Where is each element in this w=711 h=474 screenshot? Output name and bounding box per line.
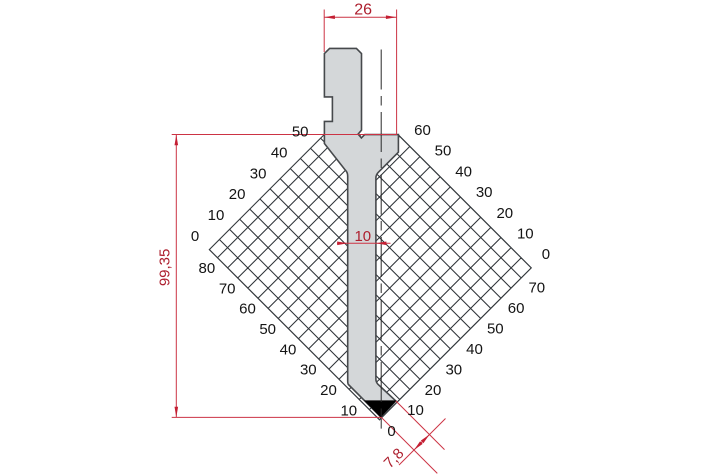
svg-text:10: 10 [407, 402, 424, 419]
svg-text:70: 70 [528, 280, 545, 297]
svg-text:80: 80 [199, 260, 216, 277]
svg-text:60: 60 [414, 122, 431, 139]
svg-text:20: 20 [425, 382, 442, 399]
svg-text:60: 60 [239, 301, 256, 318]
svg-text:0: 0 [542, 246, 550, 263]
svg-text:40: 40 [466, 341, 483, 358]
svg-text:30: 30 [300, 362, 317, 379]
svg-text:26: 26 [354, 2, 372, 19]
svg-text:50: 50 [292, 124, 309, 141]
svg-text:0: 0 [191, 228, 199, 245]
svg-text:20: 20 [320, 382, 337, 399]
svg-text:40: 40 [280, 341, 297, 358]
svg-text:60: 60 [508, 300, 525, 317]
svg-text:70: 70 [219, 280, 236, 297]
svg-text:20: 20 [496, 205, 513, 222]
svg-text:10: 10 [340, 402, 357, 419]
svg-text:50: 50 [435, 143, 452, 160]
svg-text:10: 10 [208, 207, 225, 224]
svg-text:50: 50 [259, 321, 276, 338]
svg-text:0: 0 [387, 423, 395, 440]
svg-text:10: 10 [517, 226, 534, 243]
svg-text:10: 10 [354, 228, 371, 245]
svg-text:20: 20 [229, 186, 246, 203]
svg-text:30: 30 [445, 362, 462, 379]
svg-text:99,35: 99,35 [157, 249, 174, 287]
svg-text:30: 30 [476, 184, 493, 201]
svg-text:50: 50 [487, 321, 504, 338]
svg-text:30: 30 [250, 165, 267, 182]
svg-text:40: 40 [271, 144, 288, 161]
svg-text:40: 40 [455, 163, 472, 180]
